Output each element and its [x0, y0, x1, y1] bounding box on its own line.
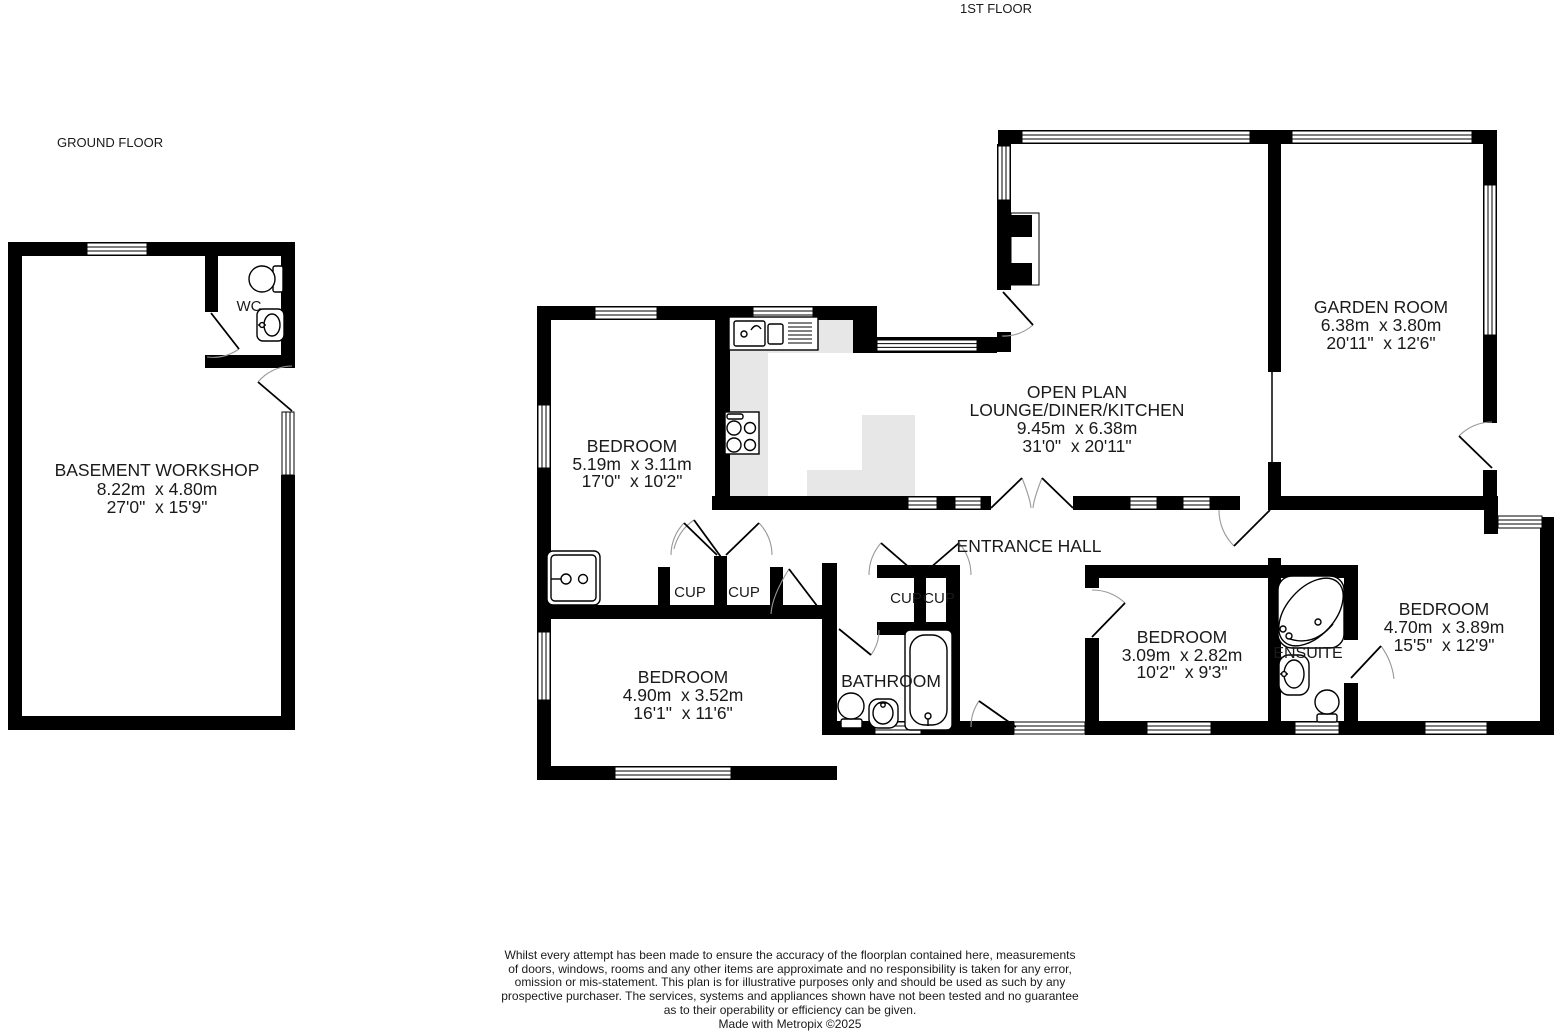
- bedroom1-imperial: 17'0" x 10'2": [582, 472, 683, 490]
- ground-floor-label: GROUND FLOOR: [57, 136, 163, 150]
- garden-room-metric: 6.38m x 3.80m: [1321, 316, 1442, 334]
- basement-workshop-name: BASEMENT WORKSHOP: [55, 461, 260, 479]
- bedroom4-imperial: 15'5" x 12'9": [1394, 636, 1495, 654]
- wc-label: WC: [237, 299, 262, 315]
- bedroom2-name: BEDROOM: [638, 668, 728, 686]
- metropix-credit: Made with Metropix ©2025: [719, 1018, 862, 1032]
- bedroom1-sink-unit: [547, 551, 600, 605]
- hob: [725, 412, 759, 454]
- ensuite-label: ENSUITE: [1273, 646, 1342, 663]
- bedroom2-metric: 4.90m x 3.52m: [623, 686, 744, 704]
- bedroom1-name: BEDROOM: [587, 437, 677, 455]
- disclaimer-line-3: omission or mis-statement. This plan is …: [515, 976, 1066, 990]
- cupboard-label-1: CUP: [674, 585, 706, 601]
- garden-room-name: GARDEN ROOM: [1314, 298, 1448, 316]
- basement-workshop-imperial: 27'0" x 15'9": [107, 498, 208, 516]
- entrance-hall-label: ENTRANCE HALL: [957, 537, 1102, 555]
- bedroom4-metric: 4.70m x 3.89m: [1384, 618, 1505, 636]
- wc-toilet: [249, 266, 283, 292]
- cupboard-label-4: CUP: [923, 591, 955, 607]
- walls: [8, 130, 1554, 780]
- bedroom4-name: BEDROOM: [1399, 600, 1489, 618]
- first-floor-label: 1ST FLOOR: [960, 2, 1032, 16]
- cupboard-label-2: CUP: [728, 585, 760, 601]
- openplan-name1: OPEN PLAN: [1027, 383, 1127, 401]
- cupboard-label-3: CUP: [890, 591, 922, 607]
- bedroom3-name: BEDROOM: [1137, 628, 1227, 646]
- bathroom-sink: [869, 699, 898, 728]
- bedroom2-imperial: 16'1" x 11'6": [633, 704, 733, 722]
- openplan-name2: LOUNGE/DINER/KITCHEN: [970, 401, 1185, 419]
- floorplan-page: 1ST FLOOR GROUND FLOOR BASEMENT WORKSHOP…: [0, 0, 1560, 1032]
- kitchen-sink: [729, 317, 818, 350]
- floorplan-drawing: [0, 0, 1560, 1032]
- disclaimer-line-5: as to their operability or efficiency ca…: [664, 1004, 917, 1018]
- openplan-metric: 9.45m x 6.38m: [1017, 419, 1138, 437]
- openplan-imperial: 31'0" x 20'11": [1022, 437, 1131, 455]
- garden-room-imperial: 20'11" x 12'6": [1326, 334, 1435, 352]
- bedroom3-imperial: 10'2" x 9'3": [1136, 663, 1227, 681]
- basement-workshop-metric: 8.22m x 4.80m: [97, 480, 218, 498]
- disclaimer-line-4: prospective purchaser. The services, sys…: [501, 990, 1078, 1004]
- disclaimer-line-1: Whilst every attempt has been made to en…: [505, 949, 1076, 963]
- ensuite-toilet: [1315, 690, 1339, 722]
- windows: [87, 131, 1542, 779]
- bathroom-toilet: [838, 693, 864, 728]
- bathroom-label: BATHROOM: [841, 672, 941, 690]
